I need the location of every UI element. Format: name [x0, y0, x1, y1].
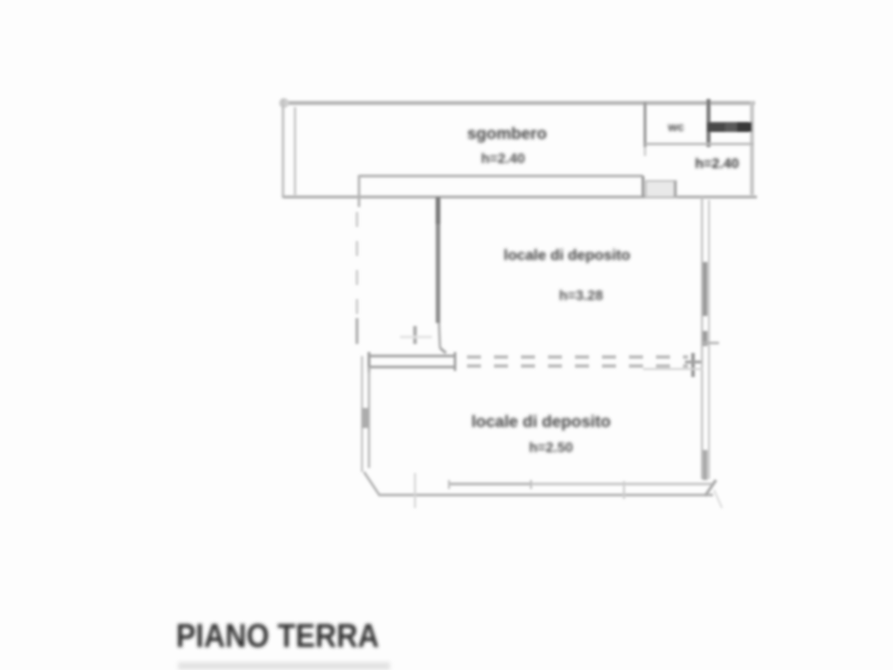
svg-text:locale di deposito: locale di deposito	[504, 247, 631, 264]
svg-text:h=2.50: h=2.50	[529, 439, 573, 455]
svg-text:locale di deposito: locale di deposito	[471, 413, 610, 431]
svg-text:PIANO TERRA: PIANO TERRA	[176, 617, 379, 654]
svg-text:h=2.40: h=2.40	[695, 155, 739, 171]
svg-text:h=2.40: h=2.40	[481, 150, 525, 166]
svg-text:wc: wc	[667, 120, 684, 134]
svg-text:h=3.28: h=3.28	[559, 287, 603, 303]
svg-text:sgombero: sgombero	[467, 125, 547, 143]
